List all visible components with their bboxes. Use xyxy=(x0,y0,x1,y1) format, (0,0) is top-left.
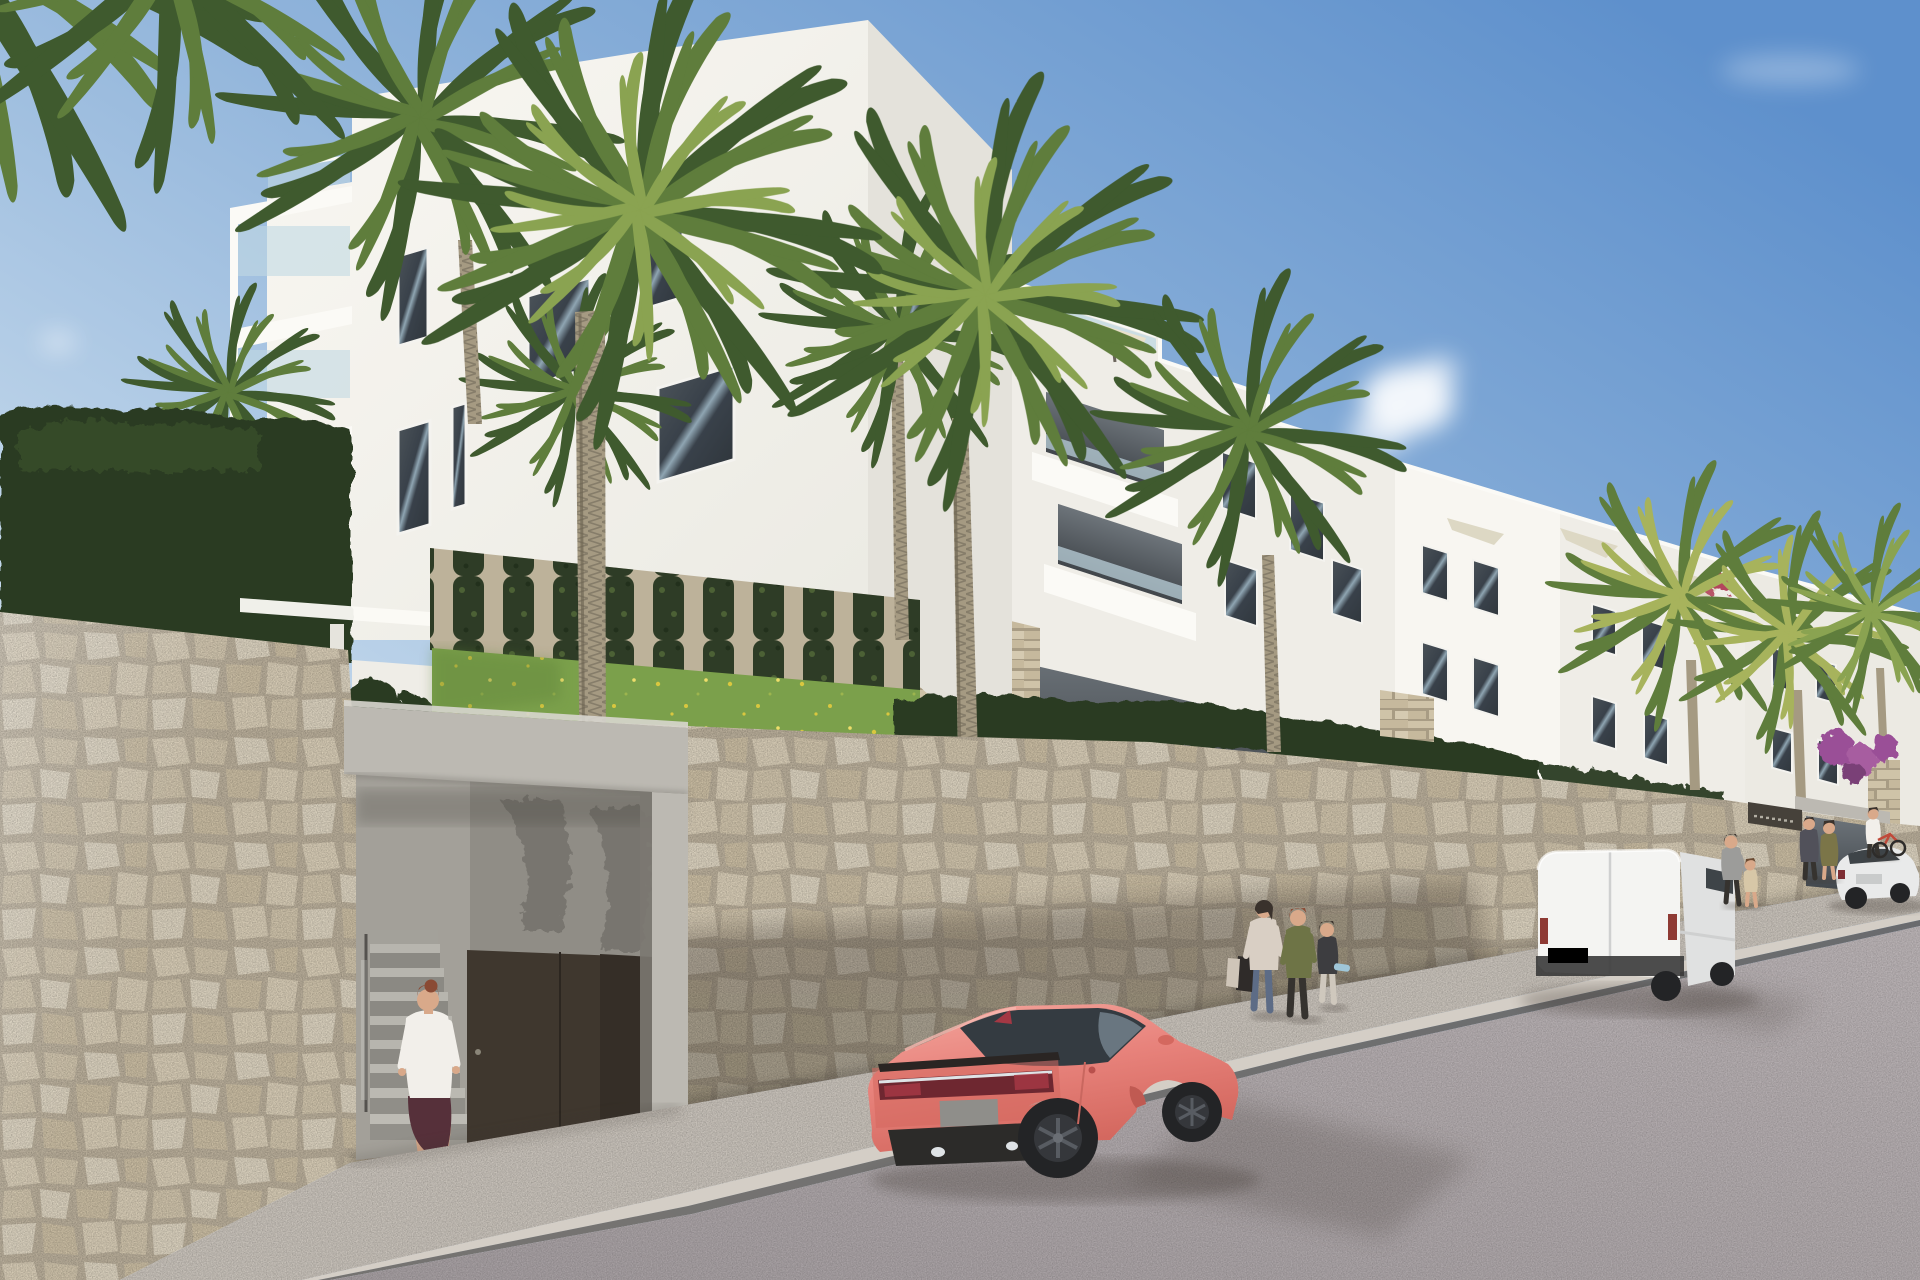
car-door-handle xyxy=(1089,1067,1096,1074)
sedan-taillight xyxy=(1838,870,1845,879)
render-canvas xyxy=(0,0,1920,1280)
car-front-wheel xyxy=(1162,1082,1222,1142)
car-plate xyxy=(940,1099,999,1127)
hair-bun xyxy=(425,980,438,993)
hedge-left-highlight xyxy=(20,420,260,470)
hedge-stone-pillar xyxy=(1380,690,1434,742)
van-taillight xyxy=(1540,918,1548,944)
handrail-glass xyxy=(361,960,367,1100)
van-taillight xyxy=(1668,914,1677,940)
van-plate xyxy=(1548,948,1588,963)
under-lintel-shadow xyxy=(356,790,684,824)
portal-right-jamb xyxy=(652,792,688,1124)
car-rear-wheel xyxy=(1018,1098,1098,1178)
door-handle[interactable] xyxy=(475,1049,481,1055)
sedan-plate xyxy=(1856,874,1882,884)
entrance-portal xyxy=(344,700,688,1160)
scene-svg xyxy=(0,0,1920,1280)
car-mirror xyxy=(1158,1035,1174,1045)
